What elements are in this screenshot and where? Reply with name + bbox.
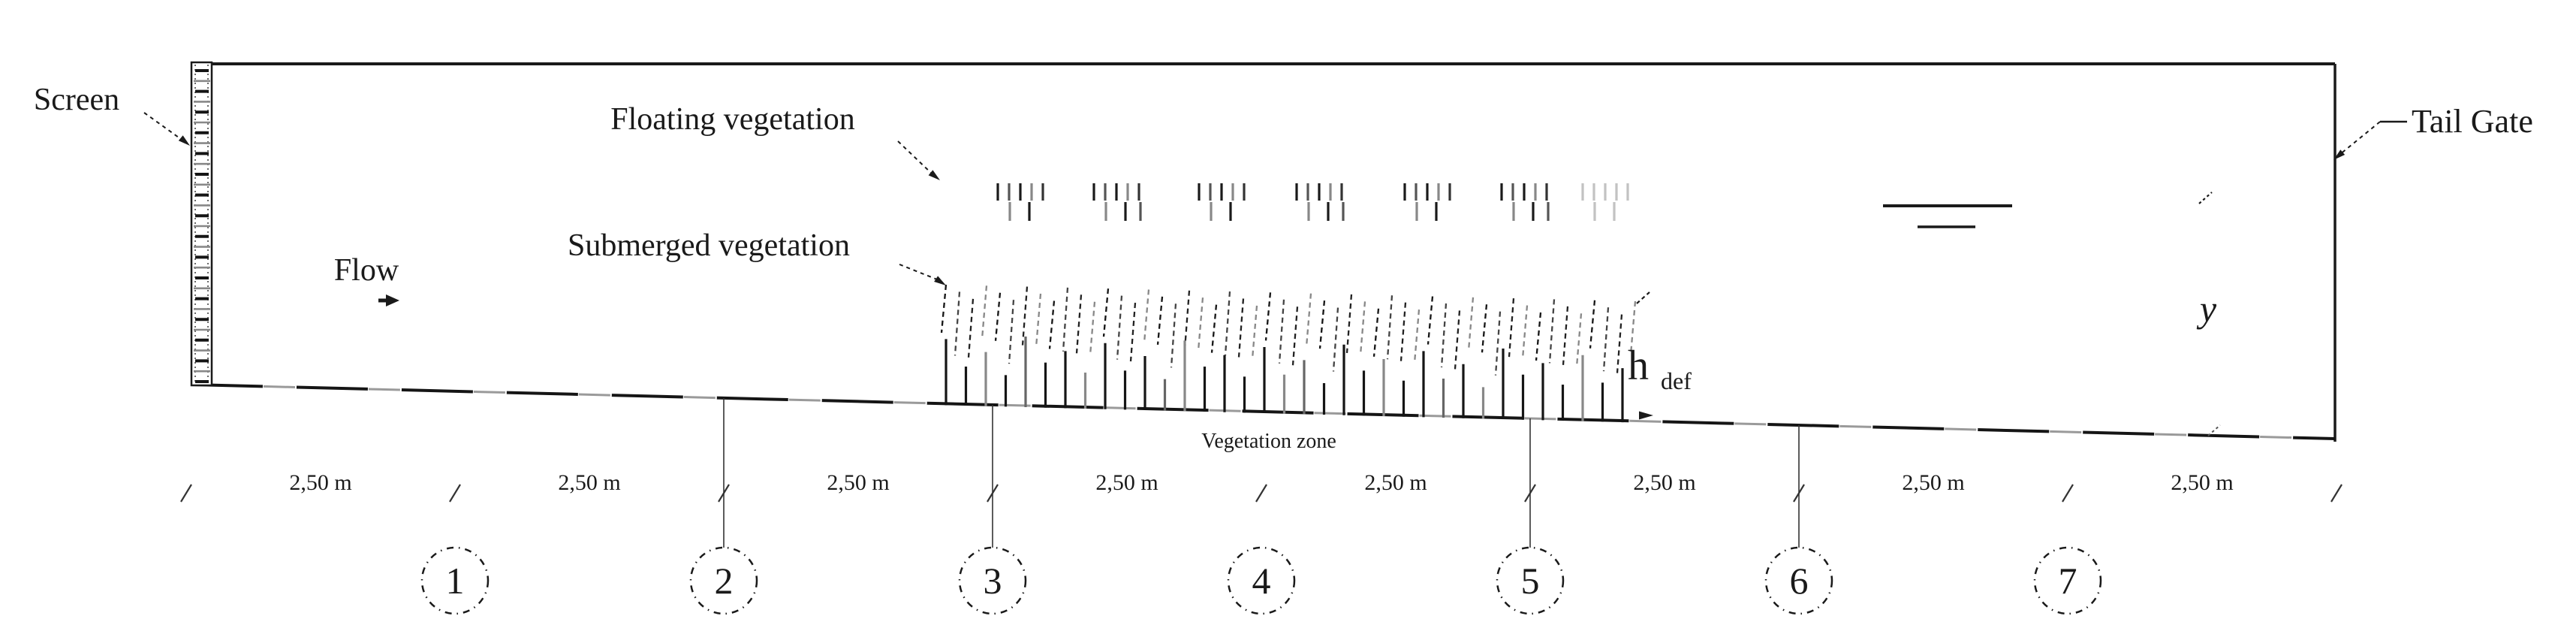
submerged-vegetation-symbols	[942, 285, 1635, 422]
floating-vegetation-symbols	[998, 183, 1628, 221]
flow-arrow-icon	[386, 294, 399, 306]
section-number: 1	[446, 560, 465, 602]
y-dimension: y	[2196, 192, 2220, 436]
dimension-row: 2,50 m 2,50 m 2,50 m 2,50 m 2,50 m 2,50 …	[181, 470, 2342, 502]
submerged-canopy-stroke	[1320, 300, 1324, 349]
dimension-label: 2,50 m	[1633, 470, 1695, 495]
submerged-canopy-stroke	[1523, 306, 1527, 359]
submerged-canopy-stroke	[1266, 292, 1270, 340]
submerged-canopy-stroke	[1077, 294, 1081, 353]
section-number: 3	[984, 560, 1002, 602]
submerged-canopy-stroke	[1158, 297, 1162, 345]
flow-label: Flow	[334, 253, 399, 288]
dimension-label: 2,50 m	[827, 470, 889, 495]
submerged-leader-line	[899, 264, 937, 279]
submerged-canopy-stroke	[1090, 302, 1095, 355]
vegetation-labels: Floating vegetation Submerged vegetation	[568, 102, 946, 285]
hdef-dimension: h def	[1628, 292, 1692, 394]
submerged-canopy-stroke	[1063, 288, 1068, 352]
submerged-canopy-stroke	[1590, 300, 1595, 349]
hdef-label: h	[1628, 343, 1649, 389]
submerged-canopy-stroke	[1117, 296, 1122, 360]
y-label: y	[2196, 288, 2217, 330]
section-number: 5	[1521, 560, 1540, 602]
submerged-canopy-stroke	[1550, 299, 1554, 363]
dimension-label: 2,50 m	[1095, 470, 1158, 495]
hdef-top-tick	[1637, 292, 1650, 303]
submerged-canopy-stroke	[1023, 287, 1027, 346]
submerged-canopy-stroke	[1293, 306, 1297, 365]
screen-leader-arrow-icon	[179, 135, 190, 146]
submerged-canopy-stroke	[1387, 295, 1392, 359]
submerged-canopy-stroke	[1036, 294, 1041, 347]
screen-leader-line	[144, 113, 184, 141]
tailgate-label: Tail Gate	[2412, 103, 2533, 140]
dimension-tick	[2331, 485, 2342, 502]
submerged-canopy-stroke	[1482, 304, 1487, 352]
submerged-canopy-stroke	[955, 291, 960, 355]
hdef-subscript: def	[1661, 367, 1692, 394]
section-number: 7	[2059, 560, 2077, 602]
submerged-canopy-stroke	[1604, 307, 1608, 371]
submerged-canopy-stroke	[1050, 300, 1054, 349]
floating-leader-line	[898, 141, 932, 174]
submerged-canopy-stroke	[1428, 297, 1433, 345]
dimension-ticks	[181, 485, 2342, 502]
screen-group: Screen	[34, 62, 212, 385]
submerged-canopy-stroke	[942, 285, 946, 333]
dimension-label: 2,50 m	[1364, 470, 1427, 495]
submerged-canopy-stroke	[1198, 297, 1203, 351]
submerged-canopy-stroke	[1509, 298, 1514, 357]
submerged-canopy-stroke	[1374, 309, 1378, 357]
dimension-tick	[2062, 485, 2073, 502]
tailgate-group: Tail Gate	[2333, 103, 2533, 160]
submerged-canopy-stroke	[1252, 306, 1257, 359]
submerged-canopy-stroke	[1415, 309, 1419, 363]
submerged-canopy-stroke	[1563, 306, 1568, 365]
submerged-canopy-stroke	[1239, 299, 1243, 358]
submerged-canopy-stroke	[1455, 310, 1460, 369]
y-top-tick	[2199, 192, 2212, 204]
submerged-canopy-stroke	[1104, 288, 1108, 337]
dimension-label: 2,50 m	[2171, 470, 2233, 495]
submerged-vegetation-label: Submerged vegetation	[568, 228, 850, 263]
submerged-canopy-stroke	[1212, 305, 1216, 353]
section-number: 2	[715, 560, 734, 602]
submerged-leader-arrow-icon	[934, 276, 946, 285]
dimension-tick	[181, 485, 191, 502]
submerged-canopy-stroke	[1360, 301, 1365, 355]
submerged-canopy-stroke	[1144, 289, 1149, 343]
section-number: 4	[1252, 560, 1271, 602]
submerged-canopy-stroke	[1442, 303, 1446, 367]
submerged-canopy-stroke	[1401, 303, 1406, 361]
dimension-tick	[1256, 485, 1267, 502]
dimension-label: 2,50 m	[289, 470, 351, 495]
submerged-canopy-stroke	[1171, 303, 1176, 367]
floating-leader-arrow-icon	[929, 170, 940, 180]
dimension-tick	[450, 485, 460, 502]
submerged-canopy-stroke	[1306, 294, 1311, 347]
submerged-canopy-stroke	[1577, 313, 1581, 367]
submerged-canopy-stroke	[1536, 312, 1541, 361]
tailgate-leader-line	[2339, 122, 2380, 155]
dimension-label: 2,50 m	[1902, 470, 1964, 495]
vegetation-zone-label: Vegetation zone	[1201, 430, 1336, 453]
submerged-canopy-stroke	[1347, 294, 1351, 353]
flume-diagram: Screen Flow Floating vegetation Submerge…	[0, 0, 2576, 643]
flow-group: Flow	[334, 253, 399, 306]
submerged-canopy-stroke	[1009, 300, 1014, 364]
y-bottom-tick	[2208, 425, 2220, 436]
submerged-canopy-stroke	[1469, 297, 1473, 351]
submerged-canopy-stroke	[1131, 303, 1135, 361]
submerged-canopy-stroke	[1225, 291, 1230, 355]
bed-arrow-icon	[1639, 412, 1653, 420]
submerged-canopy-stroke	[1496, 312, 1500, 376]
submerged-canopy-stroke	[996, 293, 1000, 341]
water-surface-mark	[1883, 206, 2012, 227]
dimension-label: 2,50 m	[558, 470, 620, 495]
submerged-canopy-stroke	[1185, 291, 1189, 349]
section-number: 6	[1790, 560, 1809, 602]
submerged-canopy-stroke	[982, 285, 987, 339]
screen-label: Screen	[34, 83, 119, 117]
submerged-canopy-stroke	[969, 299, 973, 358]
floating-vegetation-label: Floating vegetation	[610, 102, 854, 137]
submerged-canopy-stroke	[1617, 315, 1622, 373]
submerged-canopy-stroke	[1333, 308, 1338, 372]
submerged-canopy-stroke	[1279, 300, 1284, 364]
